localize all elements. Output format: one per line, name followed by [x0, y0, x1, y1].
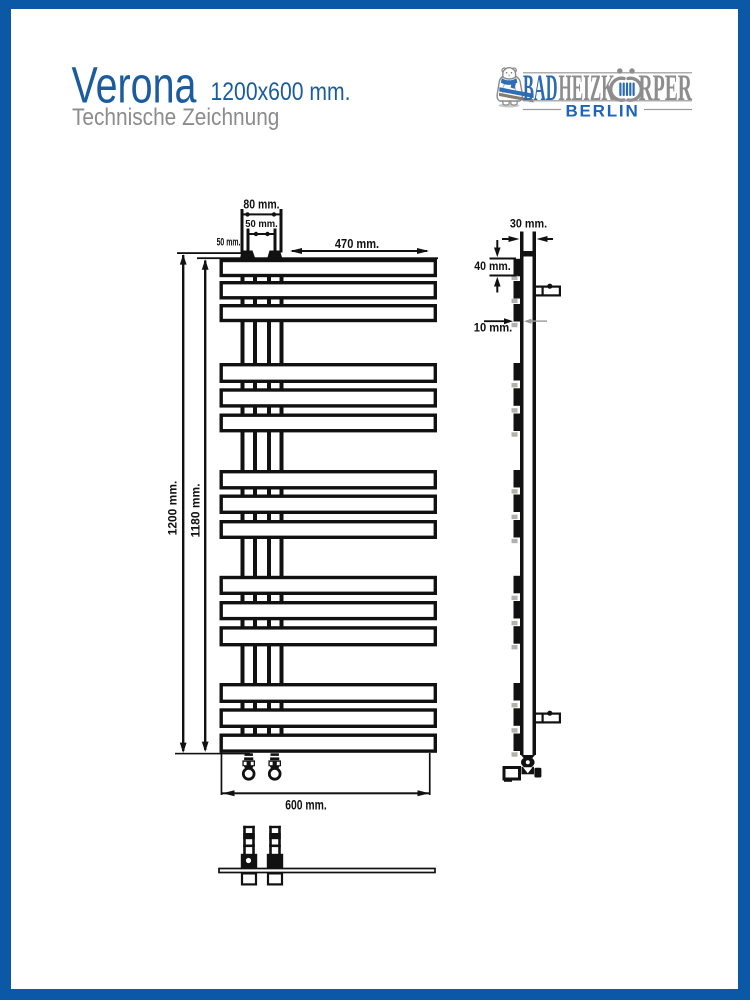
- svg-text:1200 mm.: 1200 mm.: [166, 481, 180, 536]
- svg-text:600 mm.: 600 mm.: [285, 797, 327, 813]
- svg-text:80 mm.: 80 mm.: [243, 199, 279, 212]
- svg-text:BERLIN: BERLIN: [565, 102, 639, 121]
- svg-text:Technische Zeichnung: Technische Zeichnung: [72, 104, 279, 131]
- svg-text:30 mm.: 30 mm.: [510, 218, 547, 231]
- svg-text:BAD: BAD: [523, 68, 558, 109]
- svg-text:50 mm.: 50 mm.: [217, 236, 241, 248]
- svg-text:10 mm.: 10 mm.: [474, 322, 512, 334]
- svg-text:470 mm.: 470 mm.: [335, 236, 379, 251]
- svg-text:1180 mm.: 1180 mm.: [189, 483, 203, 537]
- svg-text:50 mm.: 50 mm.: [245, 219, 278, 231]
- svg-text:40 mm.: 40 mm.: [474, 260, 510, 273]
- svg-text:1200x600 mm.: 1200x600 mm.: [211, 77, 351, 105]
- svg-text:RPER: RPER: [639, 68, 693, 109]
